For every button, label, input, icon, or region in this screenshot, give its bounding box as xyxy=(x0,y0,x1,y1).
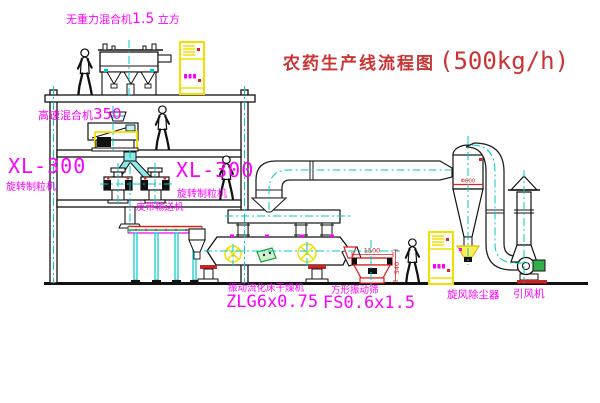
label-granulator-right-model: XL-300 xyxy=(176,160,254,180)
title-capacity: (500kg/h) xyxy=(439,47,569,75)
dim-screen-height: 540 xyxy=(393,262,401,274)
label-belt-conveyor: 皮带输送机 xyxy=(136,203,184,213)
gravity-mixer-name: 无重力混合机 xyxy=(66,13,132,26)
label-high-speed-mixer: 高速混合机350 xyxy=(38,107,122,122)
label-cyclone: 旋风除尘器 xyxy=(447,290,500,301)
dim-screen-length: 1500 xyxy=(364,247,381,255)
high-speed-mixer-value: 350 xyxy=(93,105,122,123)
person-mid-floor xyxy=(156,106,169,149)
label-granulator-left-model: XL-300 xyxy=(8,156,86,176)
induced-draft-fan xyxy=(517,258,547,284)
label-induced-draft-fan: 引风机 xyxy=(513,289,545,300)
label-granulator-right-name: 旋转制粒机 xyxy=(177,190,227,200)
control-cabinet-top xyxy=(180,42,204,94)
dryer-feed-hopper xyxy=(189,229,205,259)
fluid-bed-dryer xyxy=(198,210,362,283)
label-screen-model: FS0.6x1.5 xyxy=(323,295,415,312)
dryer-exhaust-duct xyxy=(252,161,452,212)
dim-cyclone: Φ600 xyxy=(461,179,476,185)
person-top-floor xyxy=(78,49,92,94)
label-gravity-mixer: 无重力混合机1.5 立方 xyxy=(66,12,180,26)
page-title: 农药生产线流程图 (500kg/h) xyxy=(283,47,569,75)
gravity-mixer-unit: 立方 xyxy=(158,13,180,26)
high-speed-mixer-name: 高速混合机 xyxy=(38,109,93,122)
control-cabinet-ground xyxy=(429,232,453,284)
title-text: 农药生产线流程图 xyxy=(283,49,435,74)
label-granulator-left-name: 旋转制粒机 xyxy=(6,183,56,193)
gravity-free-mixer xyxy=(98,44,171,95)
person-ground xyxy=(406,239,419,282)
gravity-mixer-value: 1.5 xyxy=(132,11,154,27)
process-flow-diagram: 1500 540 Φ600 农药生产线流程图 (500kg/h) 无重力混合机1… xyxy=(0,0,600,403)
top-floor-slab xyxy=(45,95,255,102)
label-dryer-model: ZLG6x0.75 xyxy=(226,294,318,311)
